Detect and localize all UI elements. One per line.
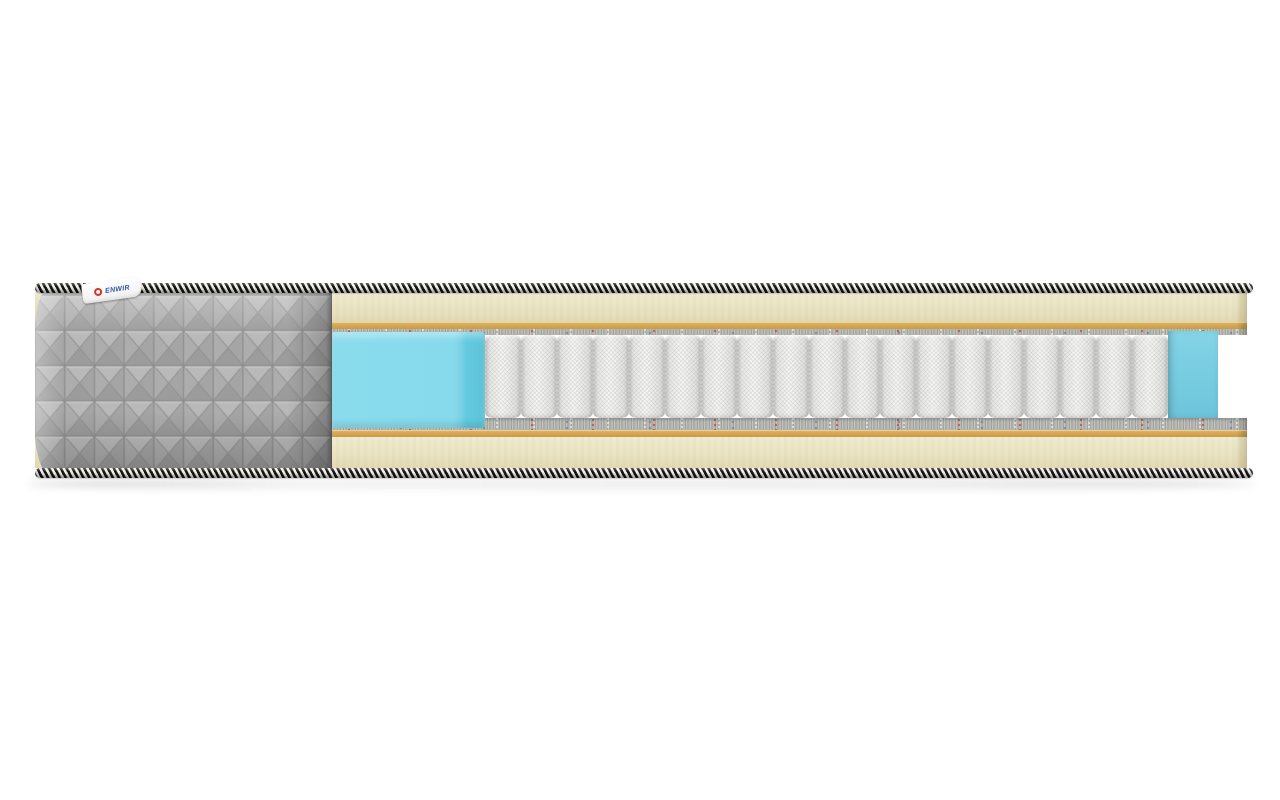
quilt-pattern bbox=[35, 286, 332, 475]
edge-foam-right-wall bbox=[1168, 331, 1218, 421]
mattress-product-photo: ENWIR bbox=[0, 0, 1280, 800]
pocket-springs bbox=[485, 335, 1168, 418]
edge-foam-left-block bbox=[331, 332, 485, 428]
brand-logo-icon bbox=[94, 287, 103, 296]
pocket-spring bbox=[809, 335, 845, 418]
pocket-spring bbox=[845, 335, 881, 418]
pocket-spring bbox=[952, 335, 988, 418]
pocket-spring bbox=[701, 335, 737, 418]
pocket-spring bbox=[773, 335, 809, 418]
pocket-spring bbox=[1096, 335, 1132, 418]
braid-trim-bottom bbox=[35, 468, 1253, 478]
pocket-spring bbox=[485, 335, 521, 418]
brand-label-text: ENWIR bbox=[105, 284, 131, 294]
pocket-spring bbox=[629, 335, 665, 418]
braid-trim-top bbox=[35, 283, 1253, 293]
pocket-spring bbox=[1060, 335, 1096, 418]
pocket-spring bbox=[665, 335, 701, 418]
mattress-cutaway: ENWIR bbox=[35, 283, 1253, 478]
pocket-spring bbox=[916, 335, 952, 418]
quilted-cover bbox=[35, 286, 332, 475]
pocket-spring bbox=[880, 335, 916, 418]
pocket-spring bbox=[1132, 335, 1168, 418]
pocket-spring bbox=[593, 335, 629, 418]
pocket-spring bbox=[737, 335, 773, 418]
floor-shadow bbox=[28, 478, 1254, 490]
cover-cut-edge bbox=[326, 286, 332, 475]
pocket-spring bbox=[557, 335, 593, 418]
pocket-spring bbox=[521, 335, 557, 418]
pocket-spring bbox=[988, 335, 1024, 418]
pocket-spring bbox=[1024, 335, 1060, 418]
